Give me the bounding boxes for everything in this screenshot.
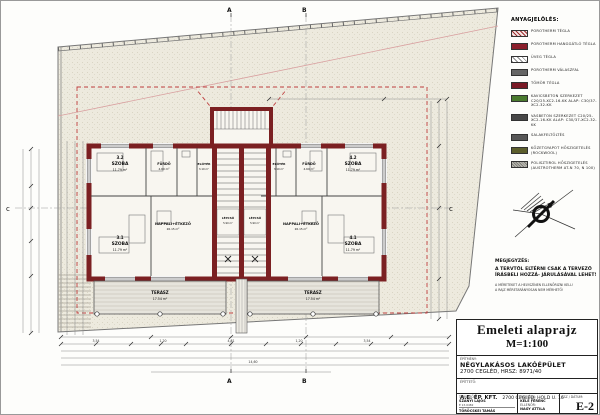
material-swatch-soundproof: [511, 43, 528, 50]
svg-text:17.54 m²: 17.54 m²: [306, 297, 321, 301]
svg-text:3.2: 3.2: [116, 155, 123, 160]
svg-text:3.1: 3.1: [116, 235, 123, 240]
material-swatch-reinforcedconcrete: [511, 114, 528, 121]
designer-reg: É 13-0482: [459, 403, 515, 408]
legend-title: ANYAGJELÖLÉS:: [511, 17, 599, 23]
project-row: ÉPÍTMÉNY: NÉGYLAKÁSOS LAKÓÉPÜLET 2700 CE…: [457, 355, 597, 378]
svg-text:17.54 m²: 17.54 m²: [153, 297, 168, 301]
project-address: 2700 CEGLÉD, HRSZ: 8971/40: [460, 369, 594, 375]
svg-text:26.15 m²: 26.15 m²: [167, 227, 180, 231]
legend-item: POROTHERM TÉGLA: [511, 29, 599, 37]
material-swatch-slagfill: [511, 134, 528, 141]
legend-item: VASBETON SZERKEZET C20/25-XC2-16-KK ALAP…: [511, 114, 599, 128]
svg-text:ELŐTÉR: ELŐTÉR: [273, 161, 287, 166]
svg-text:SZOBA: SZOBA: [112, 241, 129, 247]
drawing-scale: M=1:100: [457, 338, 597, 350]
svg-text:11.79 m²: 11.79 m²: [346, 168, 361, 172]
checked-name: NAGY ATTILA: [520, 407, 556, 411]
material-swatch-porotherm: [511, 30, 528, 37]
material-legend: ANYAGJELÖLÉS: POROTHERM TÉGLA POROTHERM …: [511, 17, 599, 176]
svg-text:4.1: 4.1: [349, 235, 356, 240]
sheet-number: E-2: [576, 399, 594, 414]
notes-block: MEGJEGYZÉS: A TERVTŐL ELTÉRNI CSAK A TER…: [495, 259, 599, 292]
svg-text:NAPPALI+ÉTKEZŐ: NAPPALI+ÉTKEZŐ: [155, 221, 191, 226]
svg-text:26.15 m²: 26.15 m²: [295, 227, 308, 231]
dim-value: 3,54: [363, 339, 370, 343]
dim-value: 4,81: [227, 339, 234, 343]
svg-text:FÜRDŐ: FÜRDŐ: [157, 161, 170, 166]
north-arrow-icon: [513, 183, 577, 247]
svg-text:11.79 m²: 11.79 m²: [113, 168, 128, 172]
client-label: ÉPÍTTETŐ:: [460, 380, 594, 384]
notes-title: MEGJEGYZÉS:: [495, 259, 599, 264]
legend-item: SALAKFELTÖLTÉS: [511, 133, 599, 141]
dim-value: 3,54: [92, 339, 99, 343]
legend-item: POROTHERM HANGGÁTLÓ TÉGLA: [511, 42, 599, 50]
svg-text:5.90 m²: 5.90 m²: [250, 221, 260, 225]
material-swatch-glassbrick: [511, 56, 528, 63]
title-block: Emeleti alaprajz M=1:100 ÉPÍTMÉNY: NÉGYL…: [456, 319, 598, 414]
legend-item: POLISZTIROL HŐSZIGETELÉS (AUSTROTHERM AT…: [511, 161, 599, 170]
svg-text:11.79 m²: 11.79 m²: [113, 248, 128, 252]
drawn-checked-cell: RAJZOLTA: KELE FERENC ELLENŐR: NAGY ATTI…: [518, 394, 559, 415]
section-marker-b-bottom: B: [302, 378, 307, 385]
section-marker-c-left: c: [6, 205, 10, 213]
svg-text:4.60 m²: 4.60 m²: [304, 167, 315, 171]
svg-text:4.60 m²: 4.60 m²: [159, 167, 170, 171]
dim-value: 14,60: [248, 360, 257, 364]
svg-text:TERASZ: TERASZ: [151, 290, 169, 295]
svg-text:LÉPCSŐ: LÉPCSŐ: [222, 215, 235, 220]
section-marker-a-bottom: A: [227, 378, 232, 385]
dim-value: 1,20: [295, 339, 302, 343]
legend-item: POROTHERM VÁLASZFAL: [511, 68, 599, 76]
svg-text:SZOBA: SZOBA: [345, 161, 362, 167]
project-name: NÉGYLAKÁSOS LAKÓÉPÜLET: [460, 361, 594, 369]
svg-text:TERASZ: TERASZ: [304, 290, 322, 295]
drawing-title: Emeleti alaprajz: [457, 322, 597, 338]
material-swatch-partition: [511, 69, 528, 76]
svg-text:SZOBA: SZOBA: [112, 161, 129, 167]
dim-value: 1,20: [159, 339, 166, 343]
section-marker-c-right: c: [449, 205, 453, 213]
section-marker-b-top: B: [302, 7, 307, 14]
signature-row: TERVEZŐK: SZANYI LAJOS É 13-0482 TÖRÖCSK…: [457, 393, 597, 415]
legend-item: KAVICSBETON SZERKEZET C20/25-XC2-16-KK A…: [511, 94, 599, 108]
material-swatch-rockwool: [511, 147, 528, 154]
material-swatch-polystyrene: [511, 161, 528, 168]
notes-body: A TERVTŐL ELTÉRNI CSAK A TERVEZŐ ÍRÁSBEL…: [495, 267, 599, 279]
material-swatch-gravelconcrete: [511, 95, 528, 102]
notes-small: A RAJZ MÉRETARÁNYOSAN NEM MÉRHETŐ!: [495, 288, 599, 292]
legend-item: KŐZETGYAPOT HŐSZIGETELÉS (ROCKWOOL): [511, 146, 599, 155]
client-row: ÉPÍTTETŐ: A.E. ÉP. KFT. 2700 CEGLÉD, HOL…: [457, 378, 597, 393]
svg-text:LÉPCSŐ: LÉPCSŐ: [249, 215, 262, 220]
designers-cell: TERVEZŐK: SZANYI LAJOS É 13-0482 TÖRÖCSK…: [457, 394, 518, 415]
drawing-title-row: Emeleti alaprajz M=1:100: [457, 320, 597, 355]
legend-item: ÜVEG TÉGLA: [511, 55, 599, 63]
section-marker-a-top: A: [227, 7, 232, 14]
svg-text:4.2: 4.2: [349, 155, 356, 160]
svg-text:3.10 m²: 3.10 m²: [199, 167, 209, 171]
sheet-number-cell: TSZ / DÁTUM: E-2: [560, 394, 597, 415]
drawing-sheet: 3,54 1,20 4,81 1,20 3,54 14,60 A B A B c…: [0, 0, 600, 415]
material-swatch-solidbrick: [511, 82, 528, 89]
legend-item: TÖMÖR TÉGLA: [511, 81, 599, 89]
svg-text:SZOBA: SZOBA: [345, 241, 362, 247]
svg-text:FÜRDŐ: FÜRDŐ: [302, 161, 315, 166]
svg-text:NAPPALI+ÉTKEZŐ: NAPPALI+ÉTKEZŐ: [283, 221, 319, 226]
svg-text:11.79 m²: 11.79 m²: [346, 248, 361, 252]
svg-text:3.10 m²: 3.10 m²: [274, 167, 284, 171]
svg-text:5.90 m²: 5.90 m²: [223, 221, 233, 225]
svg-text:ELŐTÉR: ELŐTÉR: [198, 161, 212, 166]
